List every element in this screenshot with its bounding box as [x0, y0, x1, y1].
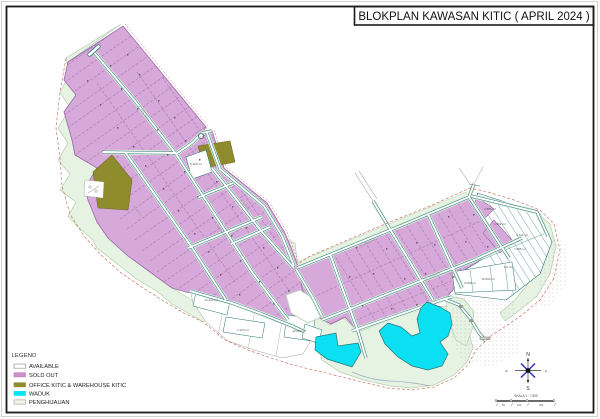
svg-text:AVAILABLE: AVAILABLE [29, 364, 59, 370]
svg-text:PENGHIJAUAN: PENGHIJAUAN [29, 400, 69, 406]
svg-text:5.400 m²: 5.400 m² [190, 162, 202, 166]
svg-text:N: N [526, 352, 530, 358]
svg-text:5.000 m²: 5.000 m² [464, 281, 476, 285]
svg-text:200: 200 [539, 403, 544, 407]
svg-text:1.662 m²: 1.662 m² [494, 222, 506, 226]
svg-text:W: W [505, 369, 508, 373]
svg-text:LEGEND: LEGEND [12, 353, 37, 359]
svg-text:100: 100 [517, 403, 522, 407]
svg-text:SOLD OUT: SOLD OUT [29, 373, 59, 379]
svg-text:10.000 m²: 10.000 m² [481, 277, 495, 281]
svg-text:10.000 m²: 10.000 m² [292, 329, 306, 333]
svg-text:4.0 m²: 4.0 m² [504, 265, 513, 269]
svg-text:OFFICE KITIC & WAREHOUSE KITIC: OFFICE KITIC & WAREHOUSE KITIC [29, 383, 126, 389]
svg-text:SKALA 1 : 7.500: SKALA 1 : 7.500 [514, 394, 538, 398]
svg-text:E: E [545, 369, 547, 373]
svg-text:1.270 m²: 1.270 m² [237, 328, 249, 332]
svg-text:2.853 m²: 2.853 m² [484, 207, 496, 211]
svg-text:4.114 m²: 4.114 m² [516, 233, 528, 237]
svg-text:14.312 m²: 14.312 m² [204, 298, 218, 302]
svg-text:BLOKPLAN KAWASAN KITIC ( APRIL: BLOKPLAN KAWASAN KITIC ( APRIL 2024 ) [358, 11, 590, 23]
svg-text:7.055 m²: 7.055 m² [514, 247, 526, 251]
svg-text:WADUK: WADUK [29, 392, 50, 398]
